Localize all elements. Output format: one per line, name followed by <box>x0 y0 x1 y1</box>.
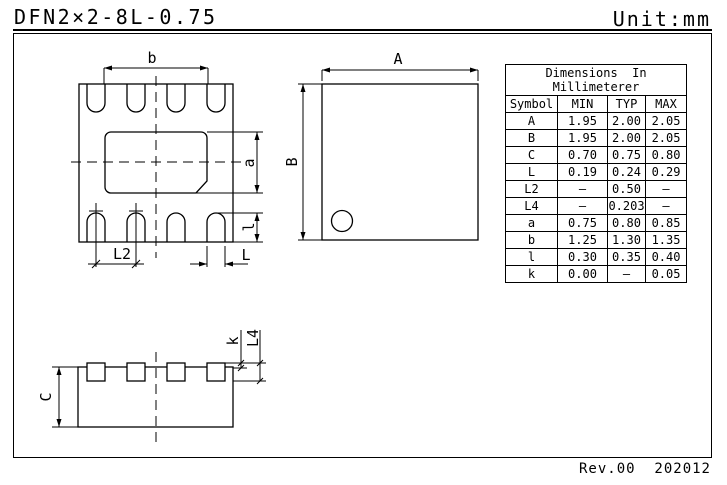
cell-min: 0.00 <box>558 266 608 283</box>
cell-max: 0.05 <box>646 266 687 283</box>
dimension-lines <box>298 70 478 240</box>
cell-typ: 1.30 <box>608 232 646 249</box>
cell-symbol: A <box>506 113 558 130</box>
cell-typ: 0.80 <box>608 215 646 232</box>
dim-label-k: k <box>224 336 242 345</box>
arrowhead <box>225 262 233 267</box>
table-row: B1.952.002.05 <box>506 130 687 147</box>
cell-min: 1.95 <box>558 113 608 130</box>
dimension-lines <box>88 68 263 268</box>
side-pad <box>167 363 185 381</box>
cell-min: – <box>558 181 608 198</box>
cell-symbol: k <box>506 266 558 283</box>
cell-symbol: b <box>506 232 558 249</box>
dim-label-A: A <box>393 50 402 68</box>
table-row: L4–0.203– <box>506 198 687 215</box>
arrowhead <box>104 66 112 71</box>
table-header-row: Symbol MIN TYP MAX <box>506 96 687 113</box>
cell-typ: 0.35 <box>608 249 646 266</box>
table-row: L2–0.50– <box>506 181 687 198</box>
dim-label-a: a <box>240 158 258 167</box>
cell-max: 1.35 <box>646 232 687 249</box>
arrowhead <box>57 367 62 375</box>
col-header-symbol: Symbol <box>506 96 558 113</box>
top-view-dimensions: A B <box>283 50 478 240</box>
arrowhead <box>255 185 260 193</box>
cell-max: 0.40 <box>646 249 687 266</box>
cell-symbol: L4 <box>506 198 558 215</box>
cell-min: 0.19 <box>558 164 608 181</box>
col-header-typ: TYP <box>608 96 646 113</box>
cell-typ: 2.00 <box>608 113 646 130</box>
table-row: a0.750.800.85 <box>506 215 687 232</box>
cell-typ: – <box>608 266 646 283</box>
table-row: L0.190.240.29 <box>506 164 687 181</box>
pin1-indicator <box>332 211 353 232</box>
dim-label-B: B <box>283 157 301 166</box>
dim-label-l: l <box>240 222 258 231</box>
cell-symbol: L <box>506 164 558 181</box>
cell-symbol: B <box>506 130 558 147</box>
table-row: C0.700.750.80 <box>506 147 687 164</box>
cell-max: – <box>646 181 687 198</box>
dim-label-L4: L4 <box>244 329 262 347</box>
dim-label-L: L <box>241 246 250 264</box>
side-pad <box>207 363 225 381</box>
cell-symbol: L2 <box>506 181 558 198</box>
cell-typ: 2.00 <box>608 130 646 147</box>
table-row: l0.300.350.40 <box>506 249 687 266</box>
arrowhead <box>255 234 260 242</box>
arrowhead <box>255 132 260 140</box>
cell-max: 0.85 <box>646 215 687 232</box>
datasheet-page: DFN2×2-8L-0.75 Unit:mm b a l <box>0 0 727 485</box>
arrowhead <box>322 68 330 73</box>
cell-max: 2.05 <box>646 130 687 147</box>
bottom-view-centerlines <box>71 76 246 258</box>
cell-typ: 0.50 <box>608 181 646 198</box>
table-row: k0.00–0.05 <box>506 266 687 283</box>
cell-max: 2.05 <box>646 113 687 130</box>
dim-label-C: C <box>37 392 55 401</box>
cell-max: 0.80 <box>646 147 687 164</box>
cell-min: 1.95 <box>558 130 608 147</box>
revision-label: Rev.00 202012 <box>579 461 711 477</box>
cell-min: 0.70 <box>558 147 608 164</box>
bottom-view-dimensions: b a l L2 L <box>88 49 263 268</box>
top-view-outline <box>322 84 478 240</box>
cell-symbol: l <box>506 249 558 266</box>
cell-symbol: a <box>506 215 558 232</box>
top-view-drawing: A B <box>283 50 478 240</box>
arrowhead <box>301 84 306 92</box>
cell-max: 0.29 <box>646 164 687 181</box>
side-view-drawing: C k L4 <box>37 329 266 443</box>
cell-symbol: C <box>506 147 558 164</box>
arrowhead <box>470 68 478 73</box>
cell-typ: 0.24 <box>608 164 646 181</box>
col-header-min: MIN <box>558 96 608 113</box>
dimensions-table: Dimensions In Millimeterer Symbol MIN TY… <box>505 64 687 283</box>
cell-typ: 0.75 <box>608 147 646 164</box>
arrowhead <box>57 419 62 427</box>
cell-min: 0.30 <box>558 249 608 266</box>
side-view-dimensions: C k L4 <box>37 329 266 427</box>
side-pad <box>87 363 105 381</box>
cell-min: 1.25 <box>558 232 608 249</box>
arrowhead <box>199 262 207 267</box>
dim-label-L2: L2 <box>113 245 131 263</box>
table-title-line2: Millimeterer <box>506 80 686 94</box>
arrowhead <box>200 66 208 71</box>
col-header-max: MAX <box>646 96 687 113</box>
table-title: Dimensions In Millimeterer <box>506 65 687 96</box>
table-row: b1.251.301.35 <box>506 232 687 249</box>
dim-label-b: b <box>147 49 156 67</box>
arrowhead <box>301 232 306 240</box>
dimensions-table-body: A1.952.002.05B1.952.002.05C0.700.750.80L… <box>506 113 687 283</box>
side-pad <box>127 363 145 381</box>
arrowhead <box>255 213 260 221</box>
cell-typ: 0.203 <box>608 198 646 215</box>
cell-max: – <box>646 198 687 215</box>
cell-min: 0.75 <box>558 215 608 232</box>
table-row: A1.952.002.05 <box>506 113 687 130</box>
bottom-view-drawing: b a l L2 L <box>71 49 263 268</box>
table-title-row: Dimensions In Millimeterer <box>506 65 687 96</box>
cell-min: – <box>558 198 608 215</box>
table-title-line1: Dimensions In <box>506 66 686 80</box>
